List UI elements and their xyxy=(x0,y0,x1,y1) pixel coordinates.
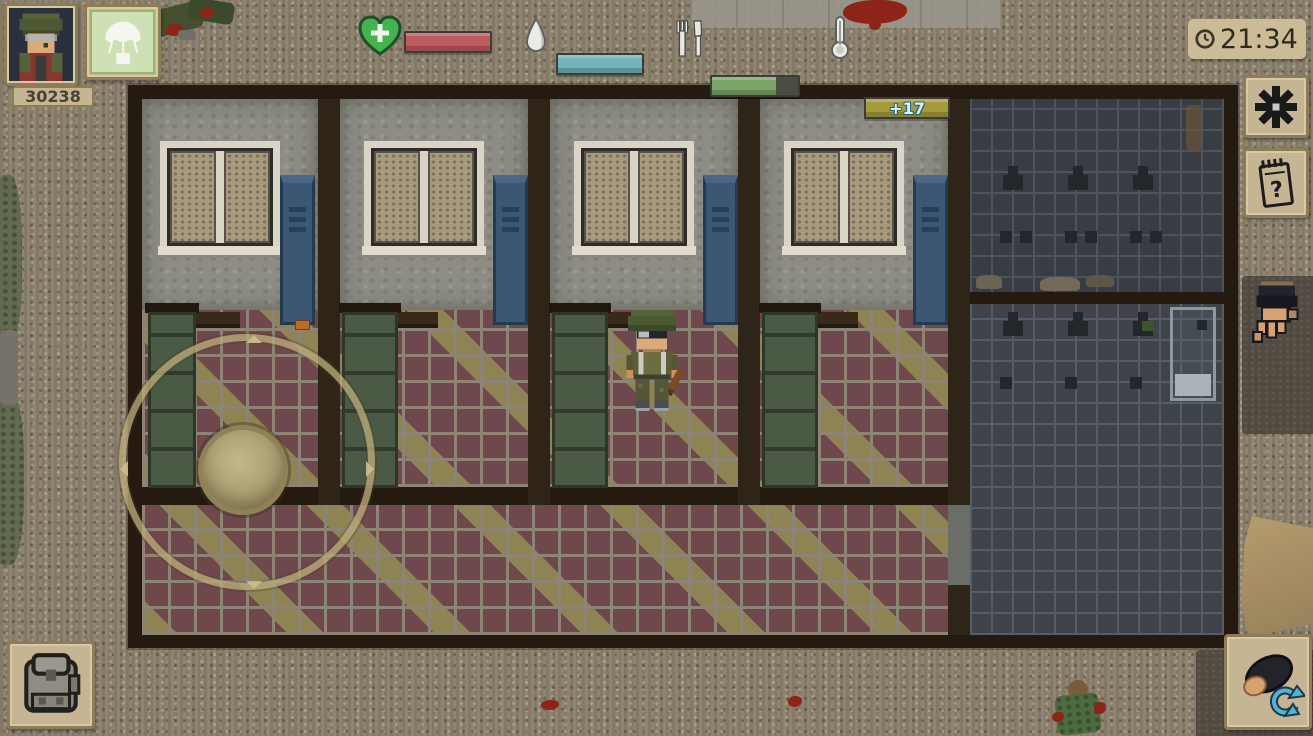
rubble xyxy=(1040,277,1080,291)
bathtub-water xyxy=(1175,374,1211,396)
game-viewport: 30238 xyxy=(0,0,1313,736)
blue-locker xyxy=(913,175,948,325)
rubble xyxy=(976,275,1002,289)
notepad-question-icon: ? xyxy=(1254,155,1298,211)
dead-body-bottom xyxy=(1050,680,1112,736)
locker-vent xyxy=(289,217,306,222)
window xyxy=(784,141,904,253)
airdrop-panel xyxy=(90,10,155,74)
shower-knob xyxy=(1130,231,1142,243)
window-pane xyxy=(224,151,270,243)
shower-knob xyxy=(1065,377,1077,389)
player-character xyxy=(616,310,688,412)
dead-body-top xyxy=(148,0,270,46)
clock-time: 21:34 xyxy=(1220,24,1298,55)
window-mullion xyxy=(420,151,428,243)
shower-head xyxy=(1068,175,1088,190)
window-sill xyxy=(782,246,906,258)
shower-head xyxy=(1068,321,1088,336)
character-top-down-icon xyxy=(1231,642,1305,722)
blood-drop xyxy=(788,696,802,707)
rotate-arrows-icon xyxy=(1274,686,1305,716)
window-pane xyxy=(794,151,840,243)
joystick-arrow-left-icon xyxy=(112,461,128,477)
shower-knob xyxy=(1085,231,1097,243)
window-mullion xyxy=(630,151,638,243)
joystick-arrow-up-icon xyxy=(246,327,262,343)
window xyxy=(364,141,484,253)
water-bar xyxy=(556,53,644,75)
locker-vent xyxy=(922,217,939,222)
hand-icon xyxy=(1250,281,1306,355)
water-icon xyxy=(524,17,548,58)
blue-locker xyxy=(703,175,738,325)
locker-vent xyxy=(502,227,519,232)
shower-knob xyxy=(1000,377,1012,389)
health-icon xyxy=(357,15,403,61)
score-badge: 30238 xyxy=(12,86,94,107)
locker-vent xyxy=(712,207,729,212)
window-pane xyxy=(584,151,630,243)
score-value: 30238 xyxy=(25,87,81,106)
moss-rocks-left xyxy=(0,390,24,565)
bathtub-drain xyxy=(1197,320,1207,330)
window-pane xyxy=(848,151,894,243)
health-bar-fill xyxy=(406,33,490,51)
joystick-arrow-right-icon xyxy=(366,461,382,477)
locker-vent xyxy=(289,227,306,232)
green-door xyxy=(762,312,818,488)
bathtub xyxy=(1170,307,1216,401)
window-pane xyxy=(170,151,216,243)
window-sill xyxy=(158,246,282,258)
locker-vent xyxy=(502,217,519,222)
window-pane xyxy=(428,151,474,243)
rubble xyxy=(1086,275,1114,287)
divider-wall xyxy=(528,99,550,505)
shower-doorway xyxy=(948,505,970,585)
window-pane xyxy=(638,151,684,243)
green-item xyxy=(1142,321,1154,331)
survival-guide-button[interactable]: ? xyxy=(1243,148,1309,218)
divider-wall xyxy=(738,99,760,505)
blue-locker xyxy=(280,175,315,325)
health-bar xyxy=(404,31,492,53)
locker-vent xyxy=(922,227,939,232)
rust-stain xyxy=(1186,105,1202,151)
window xyxy=(160,141,280,253)
locker-vent xyxy=(289,207,306,212)
player-portrait-button[interactable] xyxy=(4,3,78,86)
window-mullion xyxy=(216,151,224,243)
temperature-icon xyxy=(828,15,852,63)
shower-divider-wall xyxy=(970,292,1224,304)
backpack-icon xyxy=(18,649,84,721)
window-sill xyxy=(572,246,696,258)
window-mullion xyxy=(840,151,848,243)
shower-knob xyxy=(1065,231,1077,243)
green-door xyxy=(552,312,608,488)
shower-head xyxy=(1133,175,1153,190)
shower-knob xyxy=(1000,231,1012,243)
locker-vent xyxy=(502,207,519,212)
window-sill xyxy=(362,246,486,258)
food-icon xyxy=(674,19,706,62)
character-button[interactable] xyxy=(1224,634,1312,730)
clock-display: 21:34 xyxy=(1188,19,1306,59)
loot-item xyxy=(295,320,310,330)
water-bar-fill xyxy=(558,55,642,73)
temperature-bar: +17 xyxy=(864,97,950,119)
joystick-knob[interactable] xyxy=(198,425,288,515)
locker-vent xyxy=(712,217,729,222)
food-bar xyxy=(710,75,800,97)
svg-text:?: ? xyxy=(1269,177,1285,203)
locker-vent xyxy=(922,207,939,212)
inventory-button[interactable] xyxy=(7,641,95,729)
airdrop-button[interactable] xyxy=(84,4,161,80)
blood-drop xyxy=(869,20,881,30)
window-pane xyxy=(374,151,420,243)
moss-rocks-left xyxy=(0,175,22,345)
rock-left xyxy=(0,330,18,405)
shower-knob xyxy=(1020,231,1032,243)
shower-head xyxy=(1003,175,1023,190)
actions-button[interactable] xyxy=(1243,75,1309,138)
locker-vent xyxy=(712,227,729,232)
interact-hand-button[interactable] xyxy=(1246,281,1310,359)
joystick-arrow-down-icon xyxy=(246,581,262,597)
shower-knob xyxy=(1150,231,1162,243)
shower-head xyxy=(1003,321,1023,336)
blue-locker xyxy=(493,175,528,325)
food-bar-fill xyxy=(712,77,776,95)
blood-drop xyxy=(541,700,559,710)
blood-stain xyxy=(1094,702,1106,714)
window xyxy=(574,141,694,253)
parachute-icon xyxy=(100,17,146,67)
player-portrait xyxy=(9,8,73,81)
shower-knob xyxy=(1130,377,1142,389)
clock-icon xyxy=(1194,28,1216,50)
cardboard-plank xyxy=(1241,516,1313,638)
asterisk-icon xyxy=(1253,84,1299,130)
body-debris xyxy=(178,30,196,40)
temperature-value: +17 xyxy=(866,99,948,117)
